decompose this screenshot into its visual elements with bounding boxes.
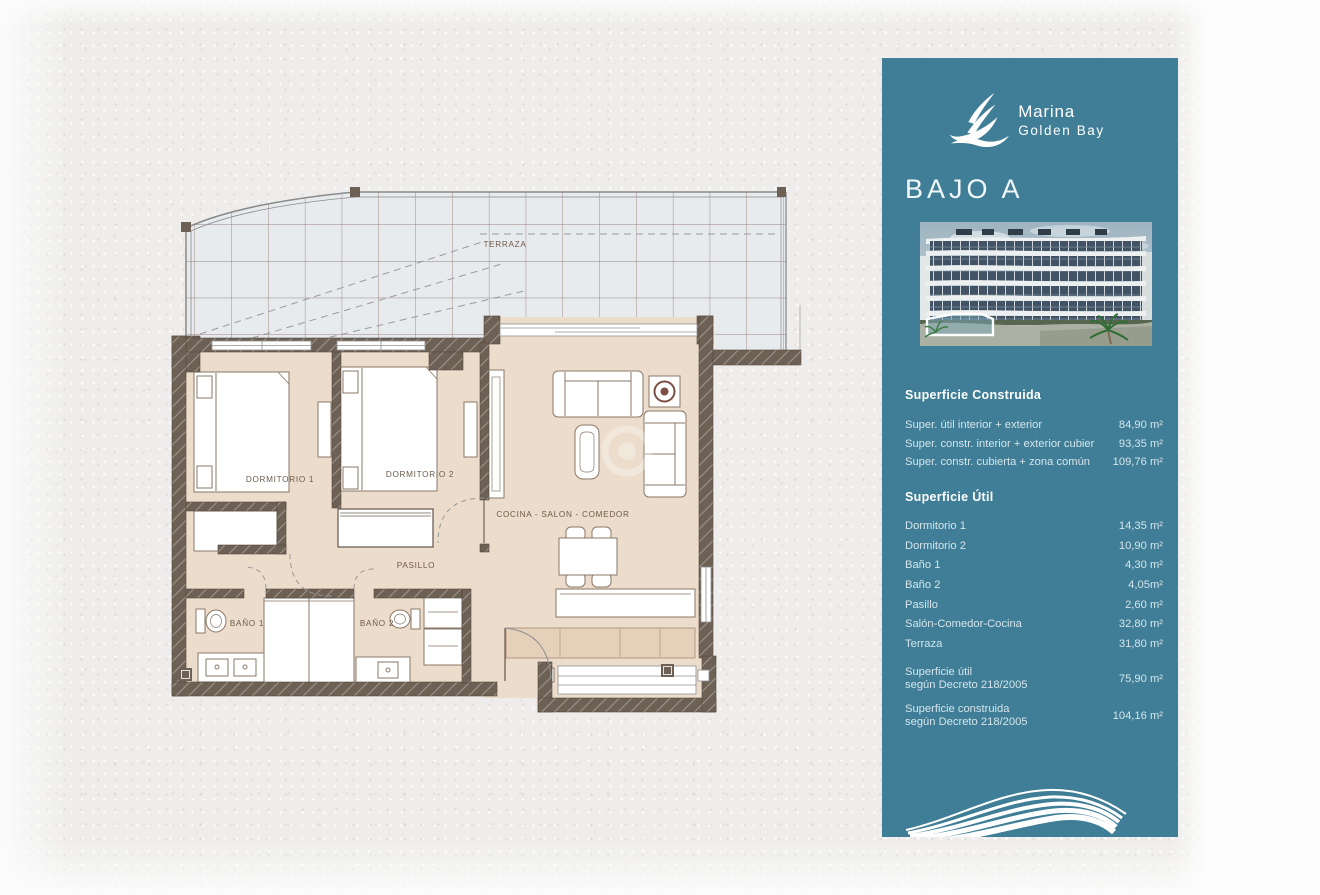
area-value: 4,05m² xyxy=(1128,579,1163,591)
unit-title: BAJO A xyxy=(905,174,1163,205)
area-label: Dormitorio 1 xyxy=(905,520,966,532)
window-dormitorio-2 xyxy=(337,341,425,350)
total-label: Superficie construida según Decreto 218/… xyxy=(905,703,1028,729)
building-photo xyxy=(920,222,1152,346)
area-label: Super. útil interior + exterior xyxy=(905,419,1042,431)
terraza-label: TERRAZA xyxy=(483,240,526,249)
brand-logo-icon xyxy=(949,91,1011,149)
total-value: 104,16 m² xyxy=(1113,710,1163,722)
area-row: Super. constr. cubierta + zona común 109… xyxy=(905,456,1163,468)
total-row: Superficie construida según Decreto 218/… xyxy=(905,703,1163,729)
brand-name-line2: Golden Bay xyxy=(1018,123,1105,138)
brand-name: Marina Golden Bay xyxy=(1018,102,1105,138)
area-label: Super. constr. cubierta + zona común xyxy=(905,456,1090,468)
construida-rows: Super. útil interior + exterior 84,90 m²… xyxy=(905,419,1163,468)
area-label: Salón-Comedor-Cocina xyxy=(905,618,1022,630)
glass-post xyxy=(350,187,360,197)
cocina-salon-comedor-label: COCINA - SALON - COMEDOR xyxy=(496,510,629,519)
total-row: Superficie útil según Decreto 218/2005 7… xyxy=(905,666,1163,692)
area-row: Terraza 31,80 m² xyxy=(905,638,1163,650)
toilet-bano-1 xyxy=(196,609,226,633)
area-value: 84,90 m² xyxy=(1119,419,1163,431)
wave-decoration xyxy=(898,780,1128,837)
coffee-table xyxy=(575,425,599,479)
area-label: Baño 2 xyxy=(905,579,940,591)
total-label: Superficie útil según Decreto 218/2005 xyxy=(905,666,1028,692)
bano-1-label: BAÑO 1 xyxy=(230,618,264,628)
kitchen-counter-bottom xyxy=(506,628,695,658)
bed-dormitorio-1 xyxy=(194,372,289,492)
bench-dormitorio-1 xyxy=(318,402,331,457)
area-label: Dormitorio 2 xyxy=(905,540,966,552)
kitchen-counter-tall xyxy=(488,370,504,498)
area-value: 14,35 m² xyxy=(1119,520,1163,532)
area-row: Super. constr. interior + exterior cubie… xyxy=(905,438,1163,450)
section-heading-util: Superficie Útil xyxy=(905,490,1163,504)
bench-dormitorio-2 xyxy=(464,402,477,457)
toilet-bano-2 xyxy=(390,609,420,629)
window-living-right xyxy=(701,567,711,622)
area-value: 32,80 m² xyxy=(1119,618,1163,630)
totals: Superficie útil según Decreto 218/2005 7… xyxy=(905,666,1163,730)
area-row: Super. útil interior + exterior 84,90 m² xyxy=(905,419,1163,431)
closet-dormitorio-2 xyxy=(338,509,433,547)
area-row: Baño 2 4,05m² xyxy=(905,579,1163,591)
window-protrusion xyxy=(558,666,696,694)
area-row: Dormitorio 2 10,90 m² xyxy=(905,540,1163,552)
corner-column xyxy=(698,670,709,681)
section-heading-construida: Superficie Construida xyxy=(905,388,1163,402)
appliance-column xyxy=(424,596,462,665)
area-value: 31,80 m² xyxy=(1119,638,1163,650)
brand: Marina Golden Bay xyxy=(905,91,1163,149)
bano-2-label: BAÑO 2 xyxy=(360,618,394,628)
brochure-page: TERRAZA xyxy=(0,0,1320,895)
vanity-bano-1 xyxy=(198,653,266,682)
glass-post xyxy=(181,222,191,232)
area-value: 109,76 m² xyxy=(1113,456,1163,468)
area-row: Salón-Comedor-Cocina 32,80 m² xyxy=(905,618,1163,630)
total-value: 75,90 m² xyxy=(1119,673,1163,685)
shower-closets xyxy=(264,598,354,683)
area-row: Pasillo 2,60 m² xyxy=(905,599,1163,611)
info-panel: Marina Golden Bay BAJO A xyxy=(882,58,1178,837)
area-row: Dormitorio 1 14,35 m² xyxy=(905,520,1163,532)
sliding-door-terrace xyxy=(500,324,697,336)
area-value: 4,30 m² xyxy=(1125,559,1163,571)
vanity-bano-2 xyxy=(356,657,410,683)
area-label: Pasillo xyxy=(905,599,938,611)
area-value: 2,60 m² xyxy=(1125,599,1163,611)
area-label: Super. constr. interior + exterior cubie… xyxy=(905,438,1094,450)
dormitorio-2-label: DORMITORIO 2 xyxy=(386,470,454,479)
sofa-top xyxy=(553,371,643,417)
area-value: 10,90 m² xyxy=(1119,540,1163,552)
brand-name-line1: Marina xyxy=(1018,102,1105,122)
area-label: Baño 1 xyxy=(905,559,940,571)
pasillo-label: PASILLO xyxy=(397,561,435,570)
glass-post xyxy=(777,187,786,197)
area-row: Baño 1 4,30 m² xyxy=(905,559,1163,571)
util-rows: Dormitorio 1 14,35 m² Dormitorio 2 10,90… xyxy=(905,520,1163,650)
area-label: Terraza xyxy=(905,638,942,650)
window-dormitorio-1 xyxy=(212,341,311,350)
kitchen-island xyxy=(556,589,695,617)
area-value: 93,35 m² xyxy=(1119,438,1163,450)
tv-unit xyxy=(649,376,680,407)
dormitorio-1-label: DORMITORIO 1 xyxy=(246,475,314,484)
